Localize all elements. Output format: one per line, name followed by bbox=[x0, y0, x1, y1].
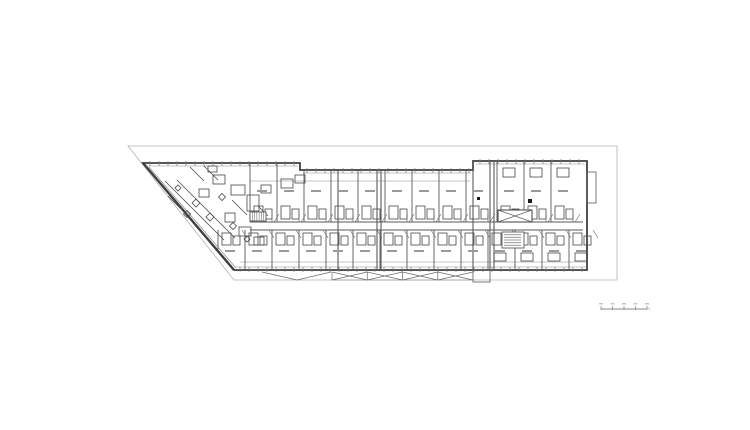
entry-canopy bbox=[262, 272, 331, 280]
balcony-protrusion bbox=[587, 172, 596, 203]
corridor bbox=[250, 222, 583, 230]
annotation-block bbox=[502, 232, 524, 248]
balcony-zigzag bbox=[332, 272, 473, 280]
scale-bar bbox=[599, 303, 650, 310]
floor-plan-page bbox=[0, 0, 750, 430]
stair bbox=[250, 212, 266, 221]
elevator-core bbox=[498, 210, 532, 222]
floor-plan-drawing bbox=[0, 0, 750, 430]
